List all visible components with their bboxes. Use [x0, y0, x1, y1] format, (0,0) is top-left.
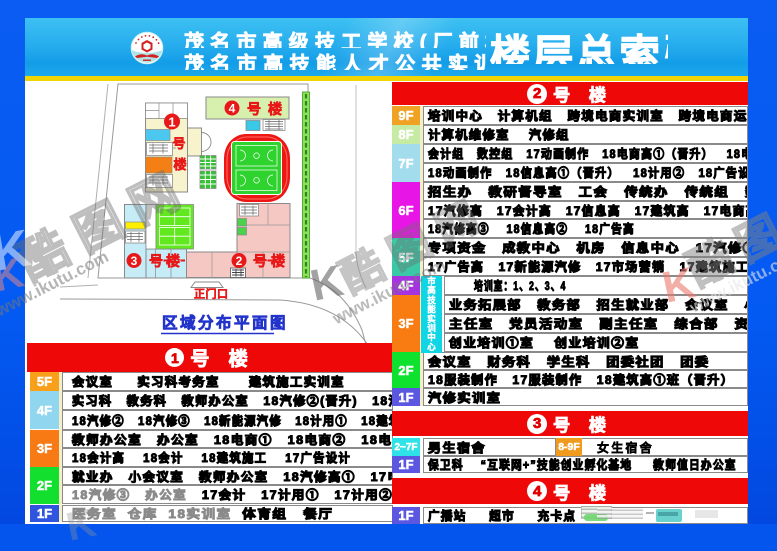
svg-text:1: 1: [168, 115, 175, 130]
svg-text:2: 2: [236, 254, 243, 268]
svg-text:楼: 楼: [271, 253, 285, 269]
svg-text:号: 号: [253, 253, 267, 269]
svg-text:区域分布平面图: 区域分布平面图: [162, 313, 288, 332]
svg-text:4: 4: [229, 102, 236, 116]
svg-text:楼: 楼: [166, 253, 180, 269]
svg-text:正门口: 正门口: [194, 287, 229, 301]
svg-text:号楼: 号楼: [247, 101, 289, 117]
svg-text:号: 号: [149, 253, 163, 269]
